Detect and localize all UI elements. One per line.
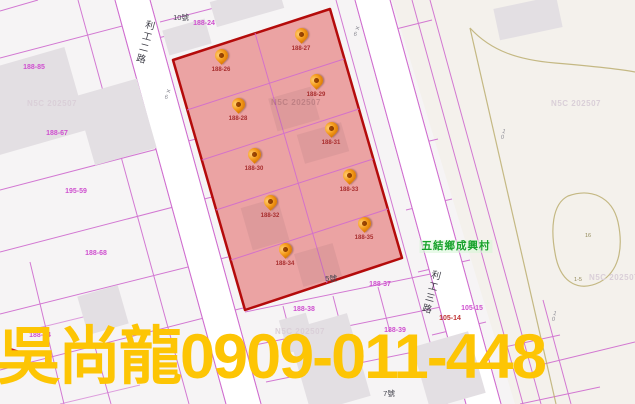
- parcel-label: 188-38: [293, 306, 315, 313]
- parcel-label: 105-14: [439, 315, 461, 322]
- house-number-label: 10號: [173, 14, 189, 22]
- pin-label: 188-35: [355, 235, 374, 241]
- pin-label: 188-34: [276, 261, 295, 267]
- map-watermark: N5C 202507: [589, 274, 635, 282]
- agent-name: 吳尚龍: [0, 322, 180, 392]
- village-label: 五結鄉成興村: [420, 240, 493, 253]
- pin-label: 188-30: [245, 166, 264, 172]
- pin-label: 188-33: [340, 187, 359, 193]
- pin-label: 188-31: [322, 140, 341, 146]
- pin-label: 188-28: [229, 116, 248, 122]
- cadastral-map-app: N5C 202507 N5C 202507 N5C 202507 N5C 202…: [0, 0, 635, 404]
- pin-label: 188-26: [212, 67, 231, 73]
- parcel-label: 188-68: [85, 250, 107, 257]
- agent-phone-number: 0909-011-448: [180, 322, 545, 392]
- pond-label: 1-5: [574, 278, 582, 284]
- pin-label: 188-27: [292, 46, 311, 52]
- agent-contact-overlay: 吳尚龍0909-011-448: [0, 326, 545, 389]
- map-watermark: N5C 202507: [271, 99, 321, 107]
- map-watermark: N5C 202507: [27, 100, 77, 108]
- pond-label: 16: [585, 234, 591, 240]
- map-watermark: N5C 202507: [551, 100, 601, 108]
- parcel-label: 188-24: [193, 20, 215, 27]
- parcel-label: 188-37: [369, 281, 391, 288]
- parcel-label: 195-59: [65, 188, 87, 195]
- parcel-label: 188-67: [46, 130, 68, 137]
- parcel-label: 105-15: [461, 305, 483, 312]
- pin-label: 188-29: [307, 92, 326, 98]
- parcel-label: 188-85: [23, 64, 45, 71]
- house-number-label: 5號: [325, 275, 337, 283]
- pin-label: 188-32: [261, 213, 280, 219]
